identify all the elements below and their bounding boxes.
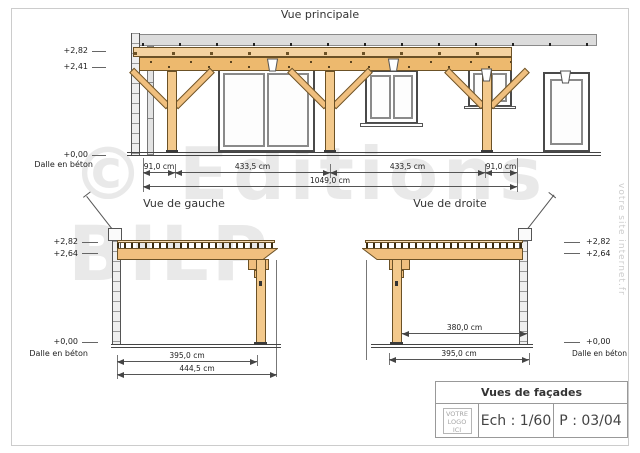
dim-label: 395,0 cm [441,349,476,358]
main-beam [139,57,512,71]
wall-lamp-icon [559,70,572,84]
level-label: +2,64 [586,249,632,258]
level-tick [92,67,106,68]
level-label: +0,00 [586,337,632,346]
dim-extension [529,353,530,365]
dim-label: 91,0 cm [486,162,517,171]
slab-label: Dalle en béton [0,349,88,358]
level-tick [564,242,580,243]
level-tick [564,253,580,254]
side-beam [362,248,523,260]
dimension: 395,0 cm [117,361,257,362]
level-tick [92,51,106,52]
level-label: +2,41 [40,62,88,71]
level-label: +2,82 [40,46,88,55]
dimension: 433,5 cm [330,172,485,173]
logo-line: ICI [444,426,471,434]
sliding-door-pane [223,73,265,147]
title-block: Vues de façades VOTRE LOGO ICI Ech : 1/6… [435,381,628,438]
dimension: 91,0 cm [485,172,517,173]
dim-label: 380,0 cm [447,323,482,332]
post [256,259,266,344]
roof-battens-band [133,47,512,57]
post [482,71,492,152]
window-sill [360,123,423,127]
scale-label: Ech : 1/60 [479,404,554,437]
right-view-title: Vue de droite [400,197,500,210]
dim-label: 1049,0 cm [310,176,350,185]
door-panel [550,79,583,145]
dim-extension [366,260,367,360]
dim-label: 433,5 cm [390,162,425,171]
dimension: 395,0 cm [389,359,529,360]
post-base [481,150,493,153]
post [392,259,402,344]
page-number: P : 03/04 [554,404,627,437]
level-label: +0,00 [32,337,78,346]
dimension: 380,0 cm [402,333,527,334]
dimension: 91,0 cm [143,172,175,173]
dimension-total: 1049,0 cm [143,186,517,187]
logo-placeholder-box: VOTRE LOGO ICI [443,408,472,434]
wall-lamp-icon [387,58,400,72]
window-pane [393,75,413,119]
window-large [365,70,418,124]
dim-label: 444,5 cm [179,364,214,373]
level-tick [564,342,580,343]
level-label: +2,82 [32,237,78,246]
roof-edge-ticks [142,43,594,46]
main-view-title: Vue principale [250,8,390,21]
dimension: 444,5 cm [117,374,277,375]
dim-label: 91,0 cm [144,162,175,171]
post-bolt [395,281,398,286]
level-tick [82,242,98,243]
post [325,71,335,152]
left-view-title: Vue de gauche [134,197,234,210]
ground-slab [127,152,601,156]
wall-lamp-icon [480,68,493,82]
level-tick [82,253,98,254]
dim-label: 395,0 cm [169,351,204,360]
logo-line: VOTRE [444,410,471,418]
slab-label: Dalle en béton [572,349,632,358]
post-base [390,342,403,345]
dim-extension [257,355,258,366]
slab-label: Dalle en béton [7,160,93,169]
dim-extension [517,158,518,192]
post-base [324,150,336,153]
level-tick [82,342,98,343]
dimension: 433,5 cm [175,172,330,173]
wall-lamp-icon [266,58,279,72]
level-label: +2,64 [32,249,78,258]
post [167,71,177,152]
level-tick [92,155,106,156]
level-label: +2,82 [586,237,632,246]
window-pane [370,75,391,119]
title-block-title: Vues de façades [436,382,627,404]
post-bolt [259,281,262,286]
dim-extension [276,260,277,377]
logo-line: LOGO [444,418,471,426]
logo-cell: VOTRE LOGO ICI [436,404,479,437]
drawing-page: © Editions BILP votre site internet.fr V… [0,0,640,453]
post-base [166,150,178,153]
dim-label: 433,5 cm [235,162,270,171]
entry-door [543,72,590,152]
level-label: +0,00 [40,150,88,159]
post-base [254,342,267,345]
